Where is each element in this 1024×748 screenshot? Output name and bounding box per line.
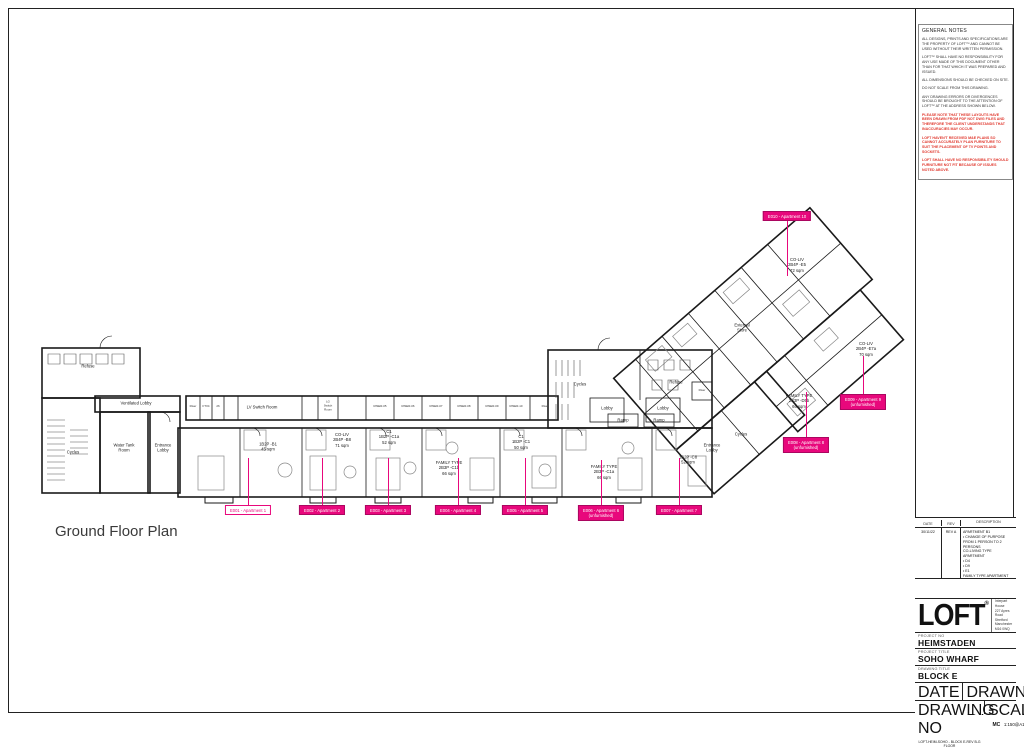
drawing-no-value: LOFT-HEIM-SOHO - BLOCK E-REV B-G FLOOR — [918, 740, 981, 748]
rev-code: REV A — [942, 528, 961, 578]
field-drawingno-scale: DRAWING NO LOFT-HEIM-SOHO - BLOCK E-REV … — [915, 700, 1016, 714]
scale-label: SCALE — [988, 702, 1024, 720]
tag-apartment-8: E008 - Apartment 8 (unfurnished) — [783, 437, 829, 453]
tag-apartment-6: E006 - Apartment 6 (unfurnished) — [578, 505, 624, 521]
tag-leader-apartment-2 — [322, 458, 323, 505]
note-warning: LOFT HAVEN'T RECEIVED M&E PLANS SO CANNO… — [922, 136, 1009, 155]
note-paragraph: ALL DESIGNS, PRINTS AND SPECIFICATIONS A… — [922, 37, 1009, 52]
tag-apartment-9: E009 - Apartment 9 (unfurnished) — [840, 394, 886, 410]
project-no-value: HEIMSTADEN — [918, 638, 1013, 648]
tag-apartment-10: E010 - Apartment 10 — [763, 211, 811, 221]
tag-leader-apartment-1 — [248, 458, 249, 505]
field-drawing-title: DRAWING TITLE BLOCK E — [915, 665, 1016, 682]
tag-leader-apartment-8 — [806, 392, 807, 437]
note-paragraph: ALL DIMENSIONS SHOULD BE CHECKED ON SITE… — [922, 78, 1009, 83]
tag-apartment-4: E004 - Apartment 4 — [435, 505, 481, 515]
tag-leader-apartment-3 — [388, 458, 389, 505]
tag-leader-apartment-10 — [787, 221, 788, 276]
company-address: Interpart House 227 Ayres Road Stretford… — [991, 599, 1016, 631]
tag-leader-apartment-4 — [458, 458, 459, 505]
note-warning: PLEASE NOTE THAT THESE LAYOUTS HAVE BEEN… — [922, 113, 1009, 132]
tag-apartment-2: E002 - Apartment 2 — [299, 505, 345, 515]
rev-header-description: DESCRIPTION — [961, 518, 1016, 527]
field-project-no: PROJECT NO HEIMSTADEN — [915, 632, 1016, 648]
revision-row: 30/11/22 REV A APARTMENT B1 • CHANGE OF … — [915, 528, 1016, 578]
loft-logo: LOFT® — [915, 600, 988, 630]
floor-plan-walls-svg — [0, 0, 1024, 723]
drawing-no-label: DRAWING NO — [918, 702, 981, 738]
tag-apartment-7: E007 - Apartment 7 — [656, 505, 702, 515]
tag-leader-apartment-5 — [525, 458, 526, 505]
note-paragraph: DO NOT SCALE FROM THIS DRAWING. — [922, 86, 1009, 91]
tag-apartment-5: E005 - Apartment 5 — [502, 505, 548, 515]
tag-leader-apartment-6 — [601, 460, 602, 505]
revision-table: DATE REV DESCRIPTION 30/11/22 REV A APAR… — [915, 517, 1016, 578]
rev-header-rev: REV — [942, 520, 961, 526]
revision-table-empty-row — [915, 578, 1016, 598]
logo-block: LOFT® Interpart House 227 Ayres Road Str… — [915, 598, 1016, 632]
drawing-title-value: BLOCK E — [918, 671, 1013, 681]
registered-mark-icon: ® — [984, 600, 987, 607]
field-date-drawnby: DATE 30/11/2022 DRAWN BY MC — [915, 682, 1016, 700]
project-title-value: SOHO WHARF — [918, 654, 1013, 664]
revision-table-header: DATE REV DESCRIPTION — [915, 518, 1016, 528]
tag-leader-apartment-7 — [679, 458, 680, 505]
rev-description: APARTMENT B1 • CHANGE OF PURPOSE FROM 1 … — [961, 528, 1016, 578]
note-warning: LOFT SHALL HAVE NO RESPONSIBILITY SHOULD… — [922, 158, 1009, 173]
rev-header-date: DATE — [915, 520, 942, 526]
note-paragraph: LOFT™ SHALL HAVE NO RESPONSIBILITY FOR A… — [922, 55, 1009, 74]
general-notes-title: GENERAL NOTES — [922, 28, 1009, 34]
note-paragraph: ANY DRAWING ERRORS OR DIVERGENCES SHOULD… — [922, 95, 1009, 110]
tag-apartment-3: E003 - Apartment 3 — [365, 505, 411, 515]
field-project-title: PROJECT TITLE SOHO WHARF — [915, 648, 1016, 665]
tag-leader-apartment-9 — [863, 356, 864, 394]
plan-title: Ground Floor Plan — [55, 523, 178, 540]
general-notes: GENERAL NOTES ALL DESIGNS, PRINTS AND SP… — [918, 24, 1013, 180]
rev-date: 30/11/22 — [915, 528, 942, 578]
tag-apartment-1: E001 - Apartment 1 — [225, 505, 271, 515]
